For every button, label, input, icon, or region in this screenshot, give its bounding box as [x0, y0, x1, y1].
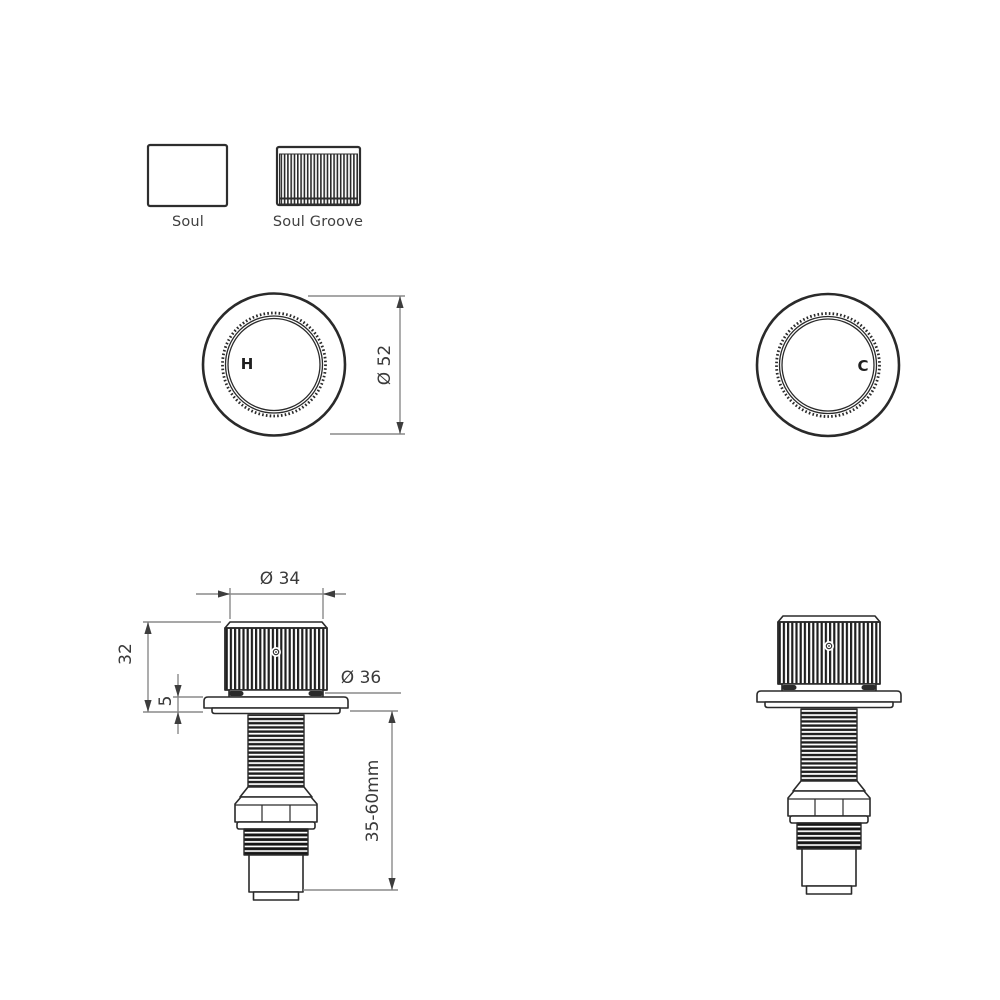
cold-tap-side-view: [757, 616, 901, 894]
dim-knob-diameter: Ø 34: [260, 569, 300, 589]
dim-base-diameter: Ø 36: [341, 668, 381, 688]
legend-soul-groove-swatch: [277, 147, 360, 205]
legend-soul-groove-label: Soul Groove: [273, 214, 363, 230]
cold-knob-top-view: [757, 294, 899, 436]
technical-drawing-page: Soul Soul Groove H C Ø 52 Ø 34 32 5 Ø 36…: [0, 0, 1000, 1000]
dim-knob-height: 32: [116, 643, 136, 665]
dim-flange-thickness: 5: [156, 696, 176, 707]
hot-knob-top-view: [203, 294, 345, 436]
cold-indicator-label: C: [857, 357, 868, 375]
hot-indicator-label: H: [241, 355, 254, 373]
drawing-linework: [0, 0, 1000, 1000]
dim-thread-range: 35-60mm: [363, 760, 383, 843]
legend-soul-label: Soul: [172, 214, 204, 230]
hot-tap-side-view: [204, 622, 348, 900]
dim-outer-diameter: Ø 52: [375, 345, 395, 385]
legend-soul-swatch: [148, 145, 227, 206]
